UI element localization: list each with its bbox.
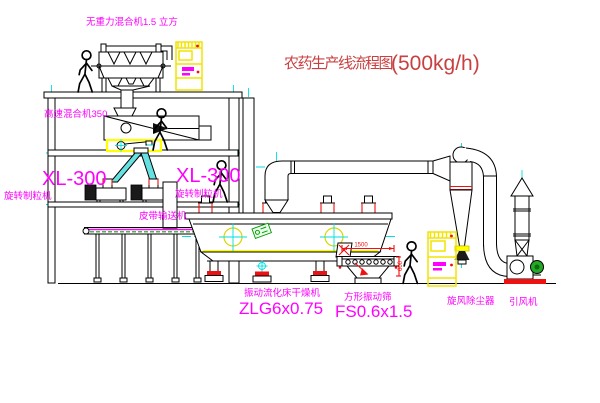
label-granulator-right-model: XL-300 xyxy=(176,165,241,187)
indicator-dot xyxy=(450,264,453,267)
label-belt-conveyor: 皮带输送机 xyxy=(139,210,187,222)
label-gravity-mixer: 无重力混合机1.5 立方 xyxy=(86,16,178,28)
label-dryer-model: ZLG6x0.75 xyxy=(239,299,323,318)
diagram-title: 农药生产线流程图 xyxy=(284,55,393,72)
diagram-canvas: 农药生产线流程图 (500kg/h) 无重力混合机1.5 立方 高速混合机350… xyxy=(0,0,600,403)
feed-duct xyxy=(243,98,254,213)
label-granulator-left-model: XL-300 xyxy=(42,168,107,190)
label-dryer-name: 振动流化床干燥机 xyxy=(244,287,321,299)
indicator-dot xyxy=(196,45,199,48)
diagram-title-capacity: (500kg/h) xyxy=(391,52,480,75)
indicator-dot xyxy=(197,71,200,74)
label-sieve-model: FS0.6x1.5 xyxy=(335,302,413,321)
label-granulator-right-name: 旋转制粒机 xyxy=(175,188,223,200)
label-fan: 引风机 xyxy=(509,296,538,308)
indicator-dot xyxy=(450,235,453,238)
dim-text-sieve-width: 600 xyxy=(398,260,404,271)
label-high-speed-mixer: 高速混合机350 xyxy=(44,108,107,120)
label-cyclone: 旋风除尘器 xyxy=(447,295,495,307)
mixer-discharge-chute xyxy=(121,90,133,110)
dim-text-sieve-length: 1500 xyxy=(354,243,368,249)
process-flow-diagram: 农药生产线流程图 (500kg/h) 无重力混合机1.5 立方 高速混合机350… xyxy=(0,0,600,403)
label-granulator-left-name: 旋转制粒机 xyxy=(4,190,52,202)
fan-base xyxy=(504,279,546,284)
discharge-flange xyxy=(455,246,469,251)
